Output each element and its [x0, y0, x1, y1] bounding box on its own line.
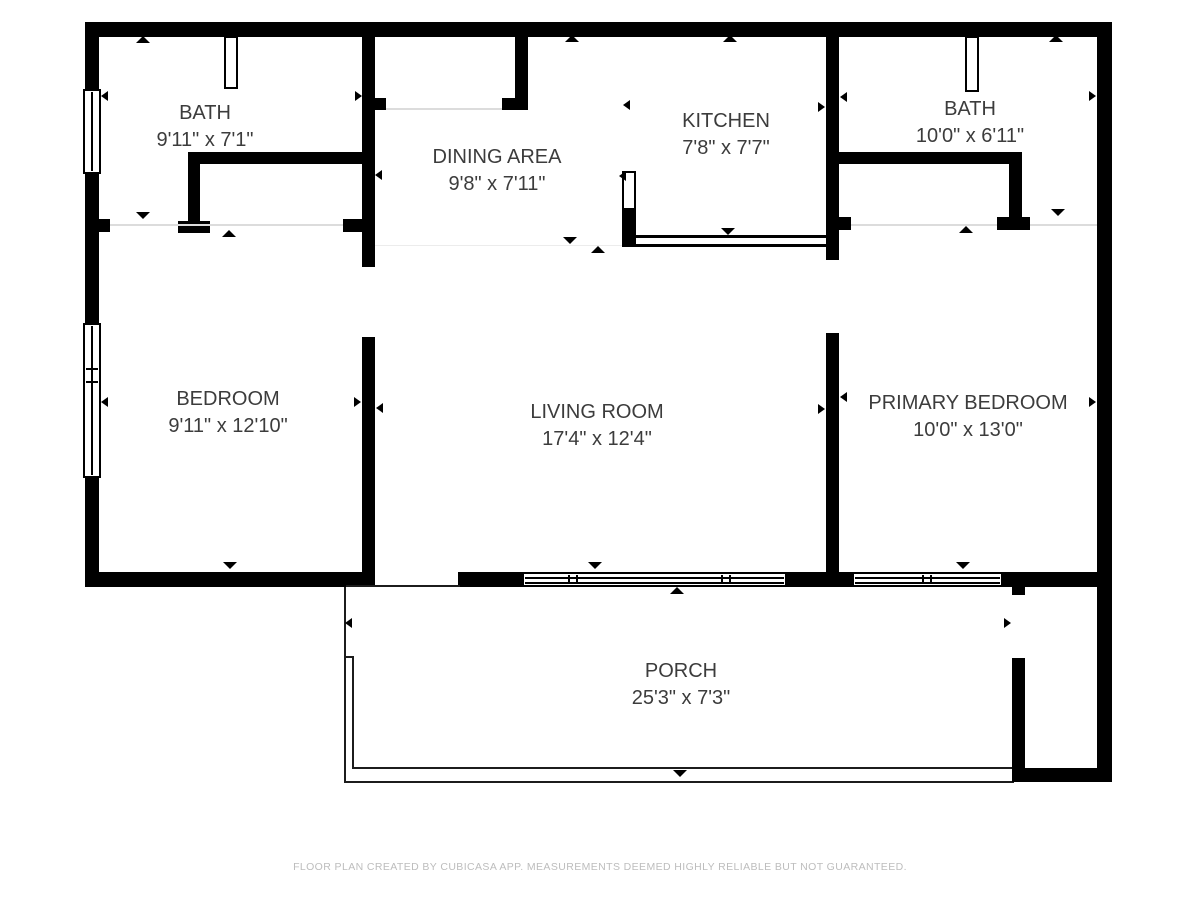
dimension-arrow-icon	[959, 226, 973, 233]
window-mullion	[930, 575, 932, 584]
wall-closet-bottom	[1012, 768, 1098, 782]
wall-bedroom-living	[362, 337, 375, 572]
room-name: BATH	[916, 96, 1024, 123]
room-label-bedroom: BEDROOM 9'11" x 12'10"	[168, 386, 287, 440]
wall-bottom-seg	[787, 572, 852, 587]
dimension-arrow-icon	[818, 404, 825, 414]
dimension-arrow-icon	[840, 92, 847, 102]
window-mullion	[729, 575, 731, 584]
window-glass-line	[91, 92, 93, 171]
wall-closet-left-upper	[1012, 587, 1025, 595]
wall-bottom-seg	[458, 572, 522, 587]
dimension-arrow-icon	[619, 171, 626, 181]
dimension-arrow-icon	[354, 397, 361, 407]
wall-outer-right	[1097, 22, 1112, 782]
room-name: KITCHEN	[682, 108, 770, 135]
dimension-arrow-icon	[101, 91, 108, 101]
dimension-arrow-icon	[591, 246, 605, 253]
room-name: PRIMARY BEDROOM	[868, 390, 1067, 417]
porch-wall-left	[344, 587, 346, 783]
window-glass-line	[91, 326, 93, 475]
dimension-arrow-icon	[840, 392, 847, 402]
floor-plan: BATH 9'11" x 7'1" DINING AREA 9'8" x 7'1…	[0, 0, 1200, 900]
room-label-living: LIVING ROOM 17'4" x 12'4"	[530, 399, 663, 453]
wall-bath-right-closet-top	[839, 152, 1022, 164]
porch-rail-cap	[344, 656, 354, 658]
window-glass-line	[525, 577, 784, 579]
window-mullion	[576, 575, 578, 584]
room-name: LIVING ROOM	[530, 399, 663, 426]
wall-kitchen-stub	[622, 208, 636, 247]
dimension-arrow-icon	[1049, 35, 1063, 42]
window-glass-line	[855, 577, 1000, 579]
wall-bedroom-top-seg	[343, 219, 362, 232]
dimension-arrow-icon	[956, 562, 970, 569]
door-leaf-bath-right	[965, 36, 979, 92]
dimension-arrow-icon	[1089, 91, 1096, 101]
room-dimensions: 9'11" x 7'1"	[156, 127, 253, 154]
window-mullion	[568, 575, 570, 584]
room-name: BEDROOM	[168, 386, 287, 413]
window-mullion	[721, 575, 723, 584]
dimension-arrow-icon	[223, 562, 237, 569]
wall-living-primary	[826, 333, 839, 572]
wall-bath-left-closet-side	[188, 163, 200, 222]
dimension-arrow-icon	[623, 100, 630, 110]
dimension-arrow-icon	[1004, 618, 1011, 628]
window-glass-line	[525, 582, 784, 584]
window-mullion	[86, 381, 98, 383]
room-dimensions: 10'0" x 13'0"	[868, 417, 1067, 444]
room-dimensions: 7'8" x 7'7"	[682, 135, 770, 162]
room-name: BATH	[156, 100, 253, 127]
room-label-primary-bedroom: PRIMARY BEDROOM 10'0" x 13'0"	[868, 390, 1067, 444]
dimension-arrow-icon	[565, 35, 579, 42]
dimension-arrow-icon	[375, 170, 382, 180]
dimension-arrow-icon	[355, 91, 362, 101]
room-label-kitchen: KITCHEN 7'8" x 7'7"	[682, 108, 770, 162]
dimension-arrow-icon	[345, 618, 352, 628]
room-label-bath-right: BATH 10'0" x 6'11"	[916, 96, 1024, 150]
room-label-bath-left: BATH 9'11" x 7'1"	[156, 100, 253, 154]
dimension-arrow-icon	[563, 237, 577, 244]
dimension-arrow-icon	[721, 228, 735, 235]
room-dimensions: 17'4" x 12'4"	[530, 426, 663, 453]
wall-closet-left-lower	[1012, 658, 1025, 770]
room-dimensions: 10'0" x 6'11"	[916, 123, 1024, 150]
dimension-arrow-icon	[588, 562, 602, 569]
porch-rail-horizontal	[352, 767, 1014, 769]
room-dimensions: 9'8" x 7'11"	[433, 171, 562, 198]
room-dimensions: 25'3" x 7'3"	[632, 685, 731, 712]
wall-bedroom-dining	[362, 37, 375, 267]
dimension-arrow-icon	[222, 230, 236, 237]
door-leaf-bath-left	[224, 36, 238, 89]
opening-line-primary-door	[1030, 224, 1097, 226]
dimension-arrow-icon	[723, 35, 737, 42]
dimension-arrow-icon	[136, 212, 150, 219]
wall-bottom-seg	[85, 572, 375, 587]
wall-bottom-seg	[1003, 572, 1112, 587]
dimension-arrow-icon	[376, 403, 383, 413]
wall-outer-top	[85, 22, 1112, 37]
dimension-arrow-icon	[136, 36, 150, 43]
room-label-dining: DINING AREA 9'8" x 7'11"	[433, 144, 562, 198]
dimension-arrow-icon	[1051, 209, 1065, 216]
porch-wall-bottom	[344, 781, 1014, 783]
wall-bedroom-top-seg	[99, 219, 110, 232]
opening-line-entry	[386, 108, 502, 110]
wall-entry-foot-right	[502, 98, 515, 110]
room-dimensions: 9'11" x 12'10"	[168, 413, 287, 440]
wall-entry-foot-left	[375, 98, 386, 110]
opening-line-closet-right	[851, 224, 997, 226]
wall-kitchen-bath	[826, 37, 839, 260]
window-bath-left	[83, 89, 101, 174]
opening-line-bedroom-top	[110, 224, 343, 226]
room-name: PORCH	[632, 658, 731, 685]
wall-bath-right-closet-side	[1009, 163, 1022, 218]
dimension-arrow-icon	[673, 770, 687, 777]
dimension-arrow-icon	[670, 587, 684, 594]
dimension-arrow-icon	[101, 397, 108, 407]
window-bedroom	[83, 323, 101, 478]
opening-line-dining-living	[375, 245, 622, 246]
window-primary-bedroom	[852, 572, 1003, 587]
room-name: DINING AREA	[433, 144, 562, 171]
window-mullion	[922, 575, 924, 584]
window-living	[522, 572, 787, 587]
porch-rail-vertical	[352, 657, 354, 769]
footer-credit: FLOOR PLAN CREATED BY CUBICASA APP. MEAS…	[0, 861, 1200, 873]
porch-threshold	[346, 585, 460, 587]
window-glass-line	[855, 582, 1000, 584]
room-label-porch: PORCH 25'3" x 7'3"	[632, 658, 731, 712]
dimension-arrow-icon	[1089, 397, 1096, 407]
dimension-arrow-icon	[818, 102, 825, 112]
kitchen-counter	[636, 235, 826, 247]
wall-bath-left-foot	[178, 221, 210, 233]
wall-bath-right-stub	[839, 217, 851, 230]
window-mullion	[86, 368, 98, 370]
wall-bath-right-foot	[997, 217, 1030, 230]
wall-entry-right	[515, 37, 528, 110]
